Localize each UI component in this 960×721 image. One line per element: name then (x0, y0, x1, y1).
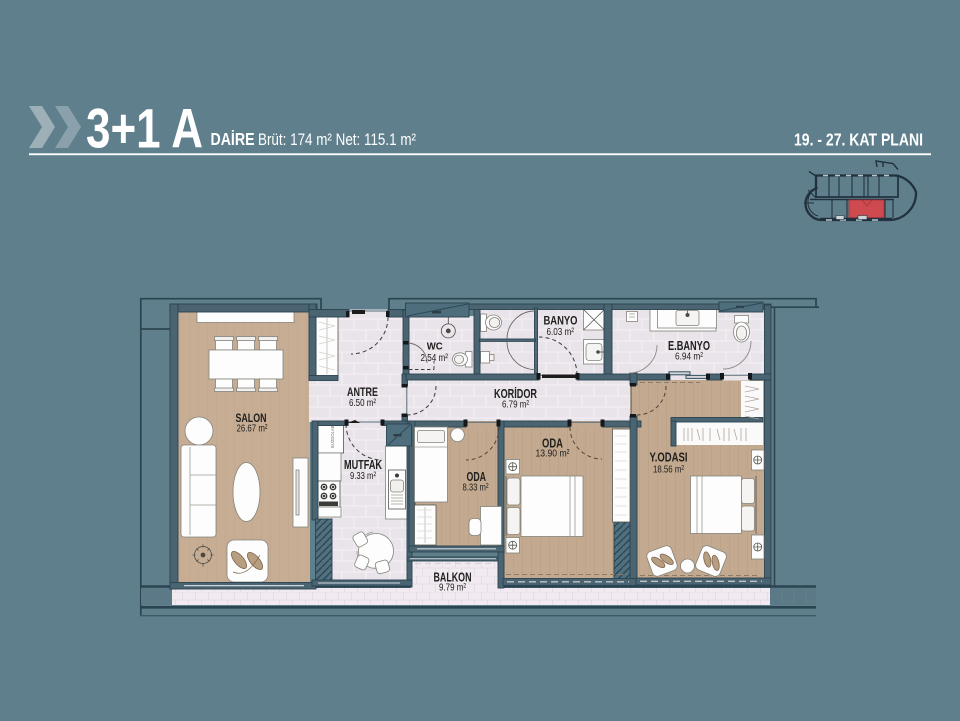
svg-text:9.79 m²: 9.79 m² (439, 581, 466, 593)
svg-text:2.54 m²: 2.54 m² (421, 353, 449, 364)
svg-text:9.33 m²: 9.33 m² (350, 470, 376, 482)
svg-text:26.67 m²: 26.67 m² (237, 423, 268, 435)
svg-text:6.94 m²: 6.94 m² (675, 351, 703, 363)
svg-text:18.56 m²: 18.56 m² (653, 463, 684, 475)
svg-text:13.90 m²: 13.90 m² (536, 448, 570, 460)
svg-text:8.33 m²: 8.33 m² (463, 482, 489, 494)
svg-text:Brüt: 174 m² Net: 115.1 m²: Brüt: 174 m² Net: 115.1 m² (258, 131, 416, 149)
svg-text:WC: WC (427, 342, 443, 353)
svg-text:3+1 A: 3+1 A (86, 97, 203, 160)
svg-text:6.50 m²: 6.50 m² (349, 397, 376, 409)
svg-text:6.03 m²: 6.03 m² (547, 326, 575, 338)
svg-text:6.79 m²: 6.79 m² (502, 399, 529, 411)
svg-text:DAİRE: DAİRE (211, 129, 255, 149)
svg-text:Y.ODASI: Y.ODASI (650, 450, 688, 464)
svg-text:BUZDOLABI: BUZDOLABI (330, 424, 335, 448)
svg-text:19. - 27. KAT PLANI: 19. - 27. KAT PLANI (794, 130, 923, 150)
